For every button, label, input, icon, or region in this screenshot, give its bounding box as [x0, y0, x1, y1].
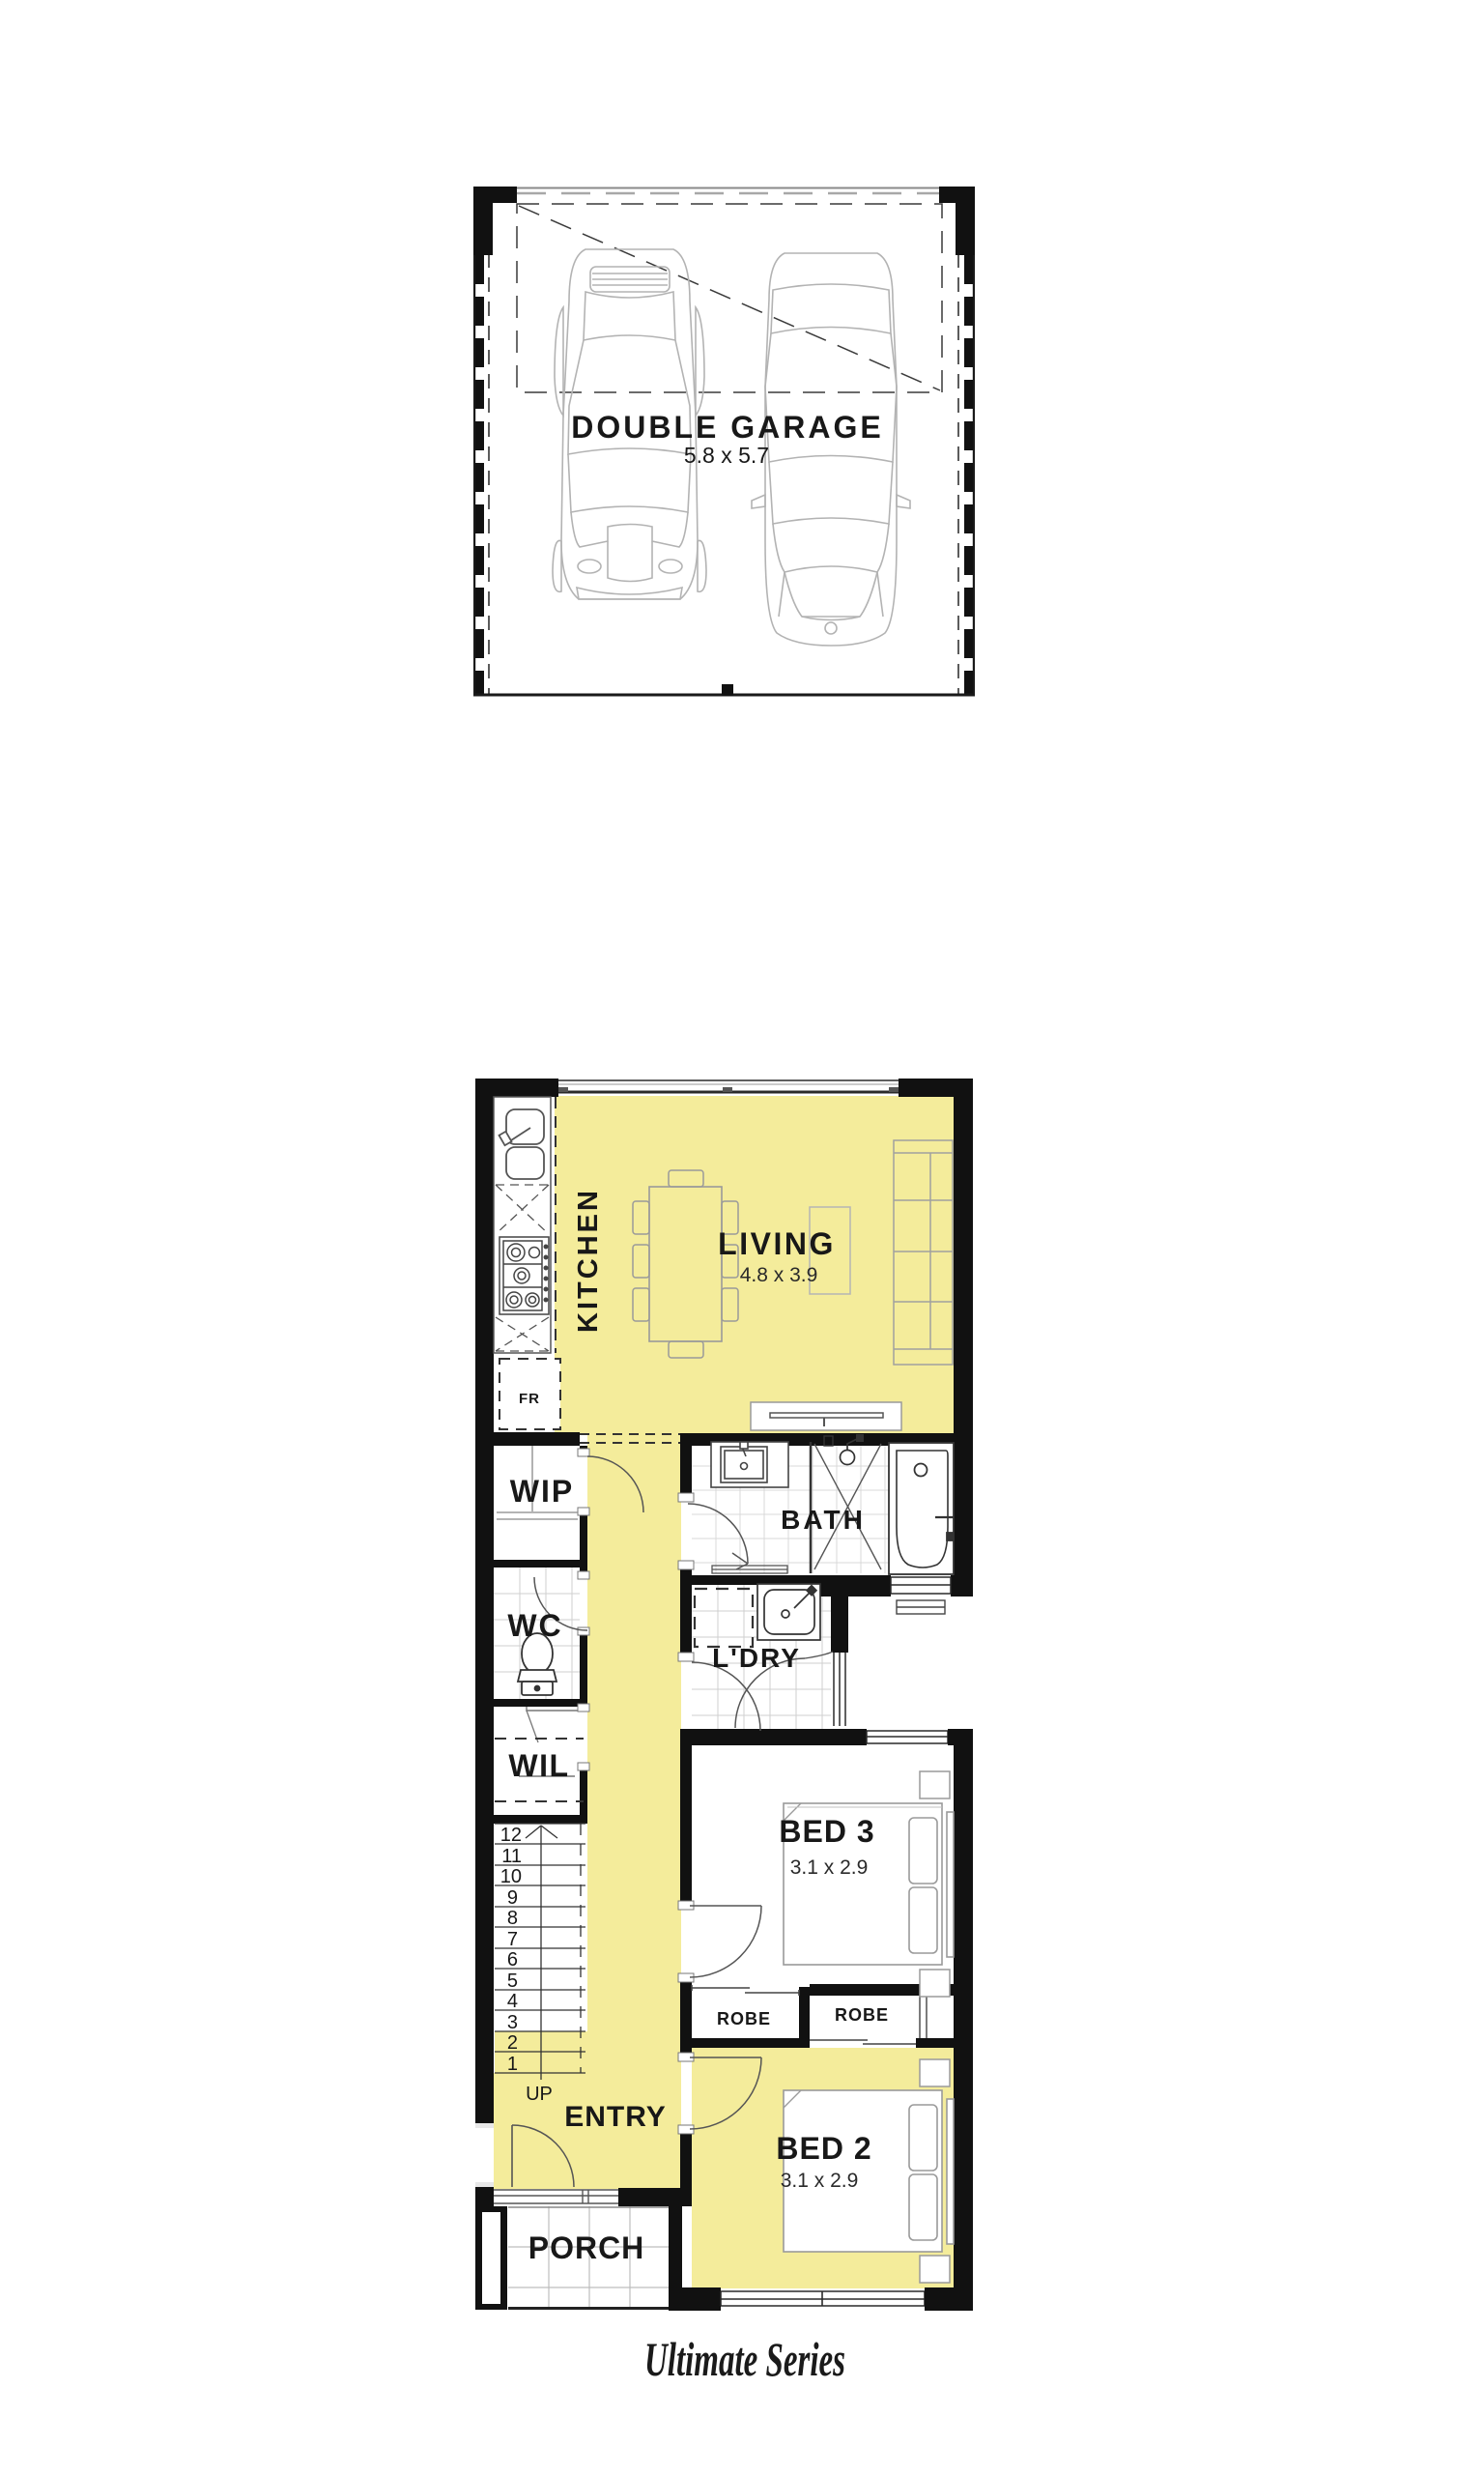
svg-text:3.1 x 2.9: 3.1 x 2.9	[781, 2170, 859, 2192]
svg-text:FR: FR	[519, 1391, 540, 1407]
svg-text:5.8 x 5.7: 5.8 x 5.7	[684, 443, 769, 468]
svg-text:4: 4	[507, 1991, 518, 2012]
svg-text:4.8 x 3.9: 4.8 x 3.9	[740, 1264, 818, 1286]
svg-text:ROBE: ROBE	[717, 2009, 771, 2028]
svg-text:3.1 x 2.9: 3.1 x 2.9	[790, 1856, 869, 1879]
svg-text:11: 11	[501, 1846, 522, 1867]
svg-text:10: 10	[500, 1866, 522, 1887]
svg-text:Ultimate Series: Ultimate Series	[644, 2333, 845, 2386]
svg-text:7: 7	[507, 1929, 518, 1950]
svg-text:6: 6	[507, 1949, 518, 1971]
svg-text:5: 5	[507, 1971, 518, 1992]
svg-text:BATH: BATH	[781, 1505, 866, 1535]
svg-text:9: 9	[507, 1887, 518, 1909]
svg-text:BED 2: BED 2	[776, 2131, 871, 2166]
svg-text:PORCH: PORCH	[528, 2230, 645, 2265]
svg-text:12: 12	[500, 1825, 522, 1846]
svg-text:3: 3	[507, 2012, 518, 2033]
svg-text:WC: WC	[507, 1608, 562, 1643]
svg-text:1: 1	[507, 2054, 518, 2075]
svg-text:BED 3: BED 3	[779, 1814, 874, 1849]
svg-text:ROBE: ROBE	[835, 2005, 889, 2025]
svg-text:2: 2	[507, 2032, 518, 2054]
svg-text:L'DRY: L'DRY	[712, 1643, 801, 1673]
svg-text:WIP: WIP	[510, 1474, 574, 1509]
svg-text:8: 8	[507, 1908, 518, 1929]
svg-text:DOUBLE GARAGE: DOUBLE GARAGE	[571, 410, 883, 445]
svg-text:UP: UP	[526, 2084, 553, 2105]
svg-text:WIL: WIL	[508, 1748, 569, 1783]
svg-text:ENTRY: ENTRY	[564, 2101, 667, 2133]
svg-text:KITCHEN: KITCHEN	[573, 1188, 604, 1333]
svg-text:LIVING: LIVING	[718, 1226, 836, 1261]
